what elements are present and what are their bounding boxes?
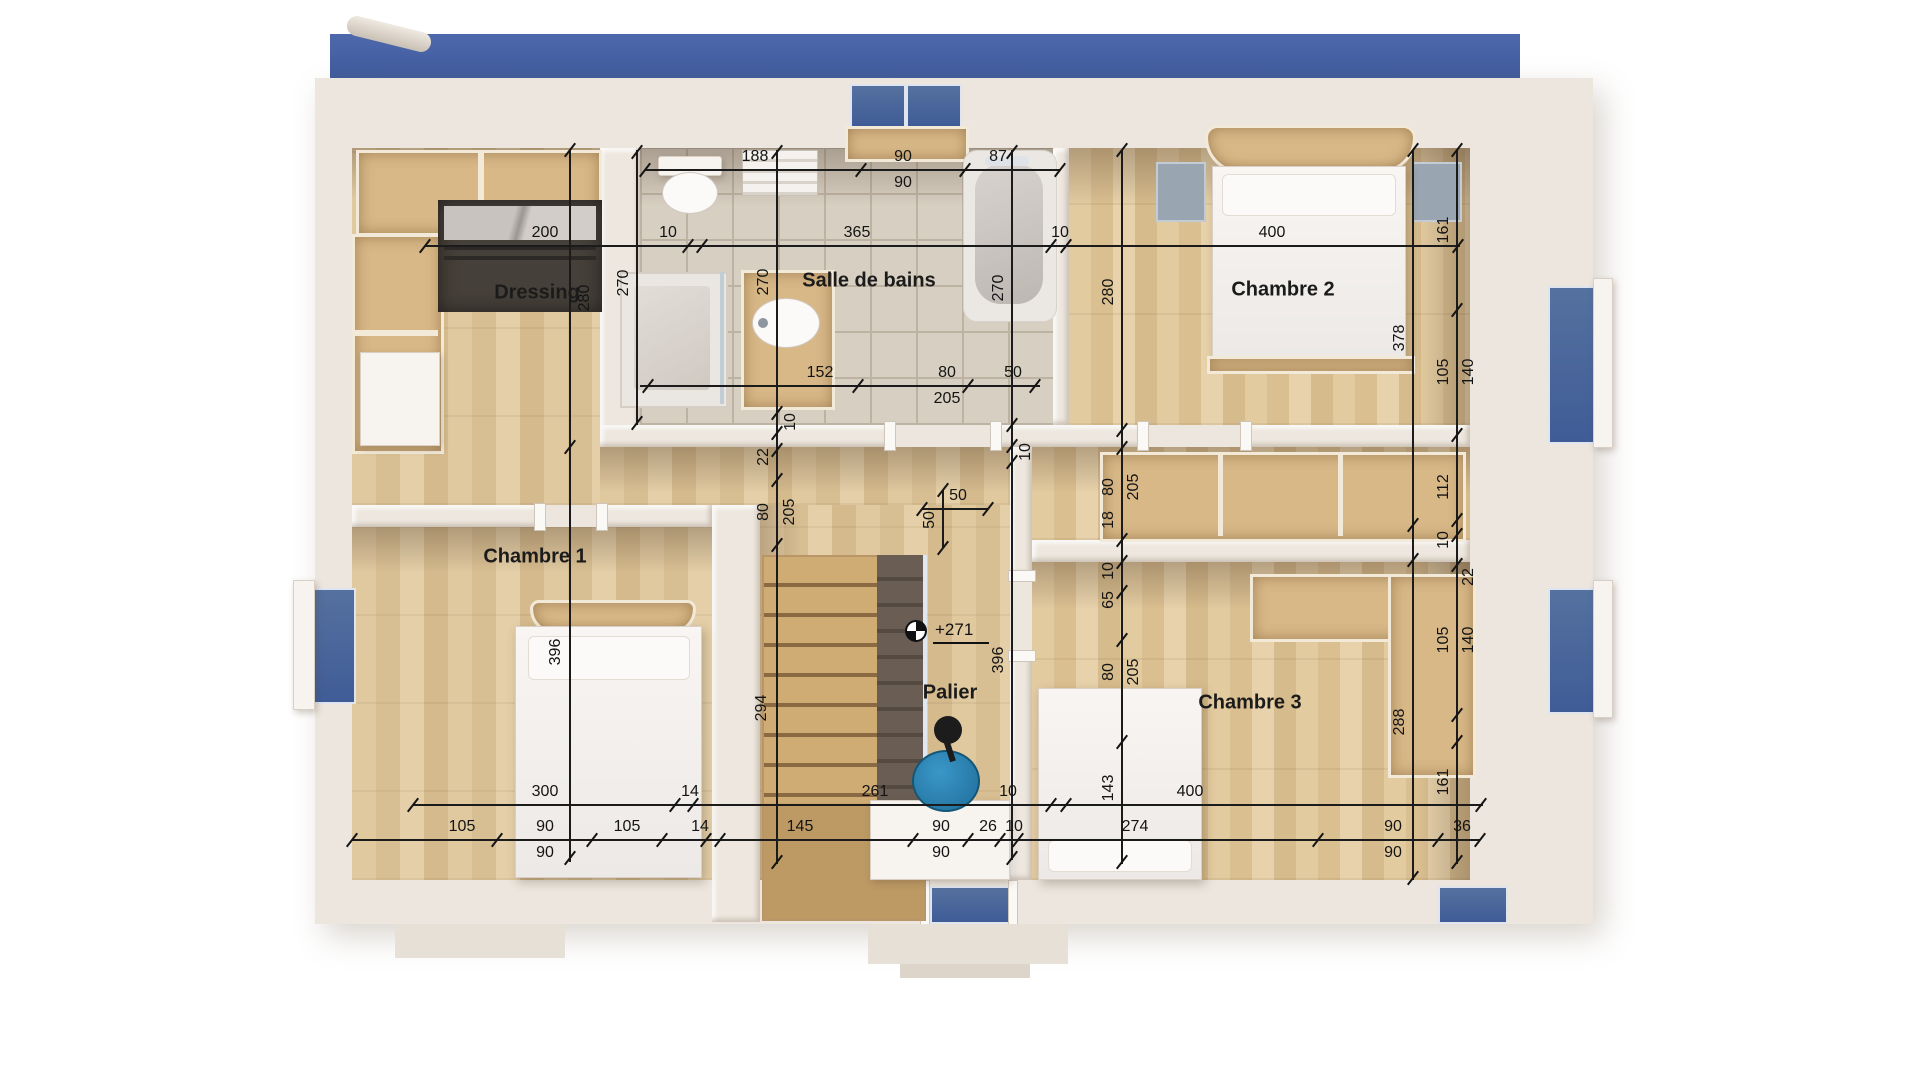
bed-frame-foot bbox=[1207, 356, 1415, 374]
nightstand bbox=[1412, 162, 1462, 222]
wall-dressing-bottom bbox=[352, 505, 540, 527]
dim-label: 140 bbox=[1460, 627, 1478, 654]
dim-label: 10 bbox=[782, 413, 800, 431]
roof-edge bbox=[330, 34, 1520, 82]
dim-label: 50 bbox=[1004, 364, 1022, 382]
dim-label: 365 bbox=[844, 224, 871, 242]
dim-line bbox=[645, 169, 1060, 171]
dim-label: 90 bbox=[894, 148, 912, 166]
dim-label: 10 bbox=[1051, 224, 1069, 242]
dim-label: 400 bbox=[1259, 224, 1286, 242]
level-marker: +271 bbox=[905, 620, 989, 644]
dim-label: 396 bbox=[547, 639, 565, 666]
room-label-bedroom3: Chambre 3 bbox=[1198, 692, 1301, 715]
toilet-bowl bbox=[662, 172, 718, 214]
dim-label: 10 bbox=[1017, 443, 1035, 461]
pillow bbox=[1048, 840, 1192, 872]
dim-label: 152 bbox=[807, 364, 834, 382]
dim-label: 274 bbox=[1122, 818, 1149, 836]
dim-label: 188 bbox=[742, 148, 769, 166]
dim-label: 143 bbox=[1100, 775, 1118, 802]
window-left-sill bbox=[293, 580, 315, 710]
window-left bbox=[313, 588, 356, 704]
dim-label: 105 bbox=[449, 818, 476, 836]
room-label-bedroom2: Chambre 2 bbox=[1231, 279, 1334, 302]
dim-label: 280 bbox=[1100, 279, 1118, 306]
staircase-flight bbox=[762, 555, 881, 805]
dim-label: 140 bbox=[1460, 359, 1478, 386]
dim-label: 105 bbox=[614, 818, 641, 836]
dim-label: 90 bbox=[1384, 844, 1402, 862]
vanity-faucet bbox=[758, 318, 768, 328]
dim-label: 270 bbox=[755, 269, 773, 296]
dim-label: 65 bbox=[1100, 591, 1118, 609]
dim-label: 80 bbox=[938, 364, 956, 382]
dim-label: 396 bbox=[990, 647, 1008, 674]
dim-label: 205 bbox=[934, 390, 961, 408]
door-jamb bbox=[990, 421, 1002, 451]
room-label-landing: Palier bbox=[923, 682, 977, 705]
dim-label: 50 bbox=[921, 511, 939, 529]
door-jamb bbox=[596, 503, 608, 531]
dim-label: 36 bbox=[1453, 818, 1471, 836]
dim-line bbox=[352, 839, 1480, 841]
dim-label: 18 bbox=[1100, 511, 1118, 529]
dim-label: 10 bbox=[659, 224, 677, 242]
wall-bedroom1-top bbox=[600, 505, 712, 527]
dim-label: 80 bbox=[755, 503, 773, 521]
dim-label: 288 bbox=[1391, 709, 1409, 736]
dim-label: 50 bbox=[949, 487, 967, 505]
dim-label: 80 bbox=[1100, 478, 1118, 496]
dim-label: 14 bbox=[691, 818, 709, 836]
dim-label: 161 bbox=[1435, 769, 1453, 796]
window-right-bottom bbox=[1548, 588, 1597, 714]
dim-label: 270 bbox=[615, 270, 633, 297]
door-balcony-landing bbox=[930, 886, 1010, 924]
dim-label: 90 bbox=[1384, 818, 1402, 836]
dim-label: 90 bbox=[894, 174, 912, 192]
closet-sliding-door bbox=[444, 206, 596, 240]
dim-line bbox=[569, 150, 571, 862]
porch-left bbox=[395, 924, 565, 958]
dim-label: 261 bbox=[862, 783, 889, 801]
floor-plan-canvas: Dressing Salle de bains Chambre 2 Chambr… bbox=[0, 0, 1920, 1080]
skylight-bathroom bbox=[850, 84, 906, 128]
dim-label: 10 bbox=[999, 783, 1017, 801]
dim-line bbox=[776, 150, 778, 864]
dim-label: 90 bbox=[932, 818, 950, 836]
dim-line bbox=[425, 245, 1460, 247]
dim-line bbox=[942, 490, 944, 548]
room-label-bedroom1: Chambre 1 bbox=[483, 546, 586, 569]
dim-label: 112 bbox=[1435, 474, 1453, 500]
dim-label: 161 bbox=[1435, 217, 1453, 244]
dim-label: 400 bbox=[1177, 783, 1204, 801]
dim-label: 80 bbox=[1100, 663, 1118, 681]
dim-label: 105 bbox=[1435, 627, 1453, 654]
dim-label: 378 bbox=[1391, 325, 1409, 352]
chair-landing bbox=[912, 750, 980, 812]
door-jamb bbox=[1008, 880, 1018, 926]
dim-label: 87 bbox=[989, 148, 1007, 166]
wall-bedroom3-top bbox=[1032, 540, 1470, 562]
door-jamb bbox=[1137, 421, 1149, 451]
dim-line bbox=[922, 508, 988, 510]
pillow bbox=[1222, 174, 1396, 216]
dim-label: 22 bbox=[755, 448, 773, 466]
dim-line bbox=[1456, 150, 1458, 864]
window-right-top-sill bbox=[1593, 278, 1613, 448]
dim-label: 10 bbox=[1100, 562, 1118, 580]
dim-label: 90 bbox=[536, 844, 554, 862]
dim-label: 22 bbox=[1460, 568, 1478, 586]
dim-label: 90 bbox=[932, 844, 950, 862]
window-bottom-right bbox=[1438, 886, 1508, 924]
dim-line bbox=[640, 385, 1040, 387]
dim-label: 10 bbox=[1005, 818, 1023, 836]
dim-label: 205 bbox=[1125, 659, 1143, 686]
shelf-bedroom3-right bbox=[1388, 574, 1476, 778]
window-right-top bbox=[1548, 286, 1597, 444]
door-jamb bbox=[534, 503, 546, 531]
dim-label: 280 bbox=[576, 285, 594, 312]
dim-label: 205 bbox=[781, 499, 799, 526]
dim-label: 90 bbox=[536, 818, 554, 836]
dim-label: 26 bbox=[979, 818, 997, 836]
closet-shelf bbox=[352, 330, 438, 336]
dim-line bbox=[636, 150, 638, 425]
dim-line bbox=[1121, 150, 1123, 864]
dim-label: 145 bbox=[787, 818, 814, 836]
shower-base bbox=[634, 286, 710, 390]
porch-center bbox=[868, 924, 1068, 964]
wall-corridor-top-c bbox=[1243, 425, 1470, 447]
dim-label: 10 bbox=[1435, 531, 1453, 549]
room-label-dressing: Dressing bbox=[494, 282, 580, 305]
door-jamb bbox=[884, 421, 896, 451]
dim-line bbox=[1011, 150, 1013, 860]
window-right-bottom-sill bbox=[1593, 580, 1613, 718]
dim-label: 105 bbox=[1435, 359, 1453, 386]
cabinet-dressing bbox=[360, 352, 440, 446]
wardrobe-divider bbox=[1338, 452, 1343, 536]
level-marker-icon bbox=[905, 620, 927, 642]
dim-label: 270 bbox=[990, 275, 1008, 302]
level-marker-text: +271 bbox=[933, 620, 989, 644]
dim-label: 14 bbox=[681, 783, 699, 801]
closet-sliding-rail bbox=[444, 256, 596, 260]
wardrobe-divider bbox=[1218, 452, 1223, 536]
porch-step bbox=[900, 964, 1030, 978]
skylight-bathroom-2 bbox=[906, 84, 962, 128]
dim-label: 300 bbox=[532, 783, 559, 801]
nightstand bbox=[1156, 162, 1206, 222]
room-label-bathroom: Salle de bains bbox=[802, 270, 935, 293]
wall-landing-bedroom3-a bbox=[1010, 447, 1032, 575]
bathtub-basin bbox=[975, 164, 1043, 304]
wall-corridor-top-a bbox=[600, 425, 890, 447]
dim-line bbox=[413, 804, 1483, 806]
dim-label: 200 bbox=[532, 224, 559, 242]
door-jamb bbox=[1240, 421, 1252, 451]
dim-label: 294 bbox=[753, 695, 771, 722]
dim-label: 205 bbox=[1125, 474, 1143, 501]
dim-line bbox=[1412, 150, 1414, 880]
